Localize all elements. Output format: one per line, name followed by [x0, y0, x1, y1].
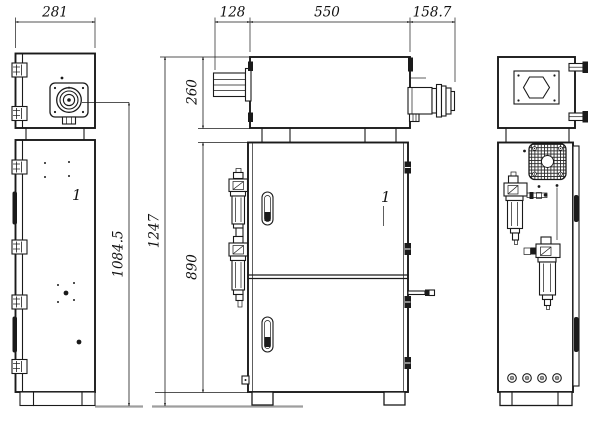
hinge-icon	[12, 360, 27, 374]
door-pull-edge	[574, 195, 579, 222]
left-cabinet	[16, 140, 96, 392]
fan-grille	[529, 144, 566, 180]
dim-box-width: 550	[314, 5, 340, 21]
dim-offset: 128	[220, 5, 246, 21]
cable-gland-connector	[408, 58, 455, 122]
hinge-icon	[405, 243, 412, 255]
side-rod	[408, 290, 435, 297]
lower-door-handle	[262, 317, 273, 352]
three-view-drawing: 1 281 1084.5 128 550 158.7 1247 260 890	[0, 0, 605, 424]
hinge-icon	[405, 357, 412, 369]
foot	[252, 392, 273, 405]
pedestal	[262, 128, 396, 142]
front-view: 1	[214, 57, 455, 405]
left-plinth	[20, 392, 95, 406]
round-connector	[50, 77, 88, 124]
hinge-icon	[12, 107, 27, 121]
door-pull-edge	[574, 317, 579, 352]
connector-icon	[538, 374, 547, 383]
hinge-icon	[569, 62, 588, 74]
right-plinth	[500, 392, 572, 406]
connector-icon	[553, 374, 562, 383]
connector-icon	[508, 374, 517, 383]
hex-access-plate	[514, 71, 559, 104]
dim-cabinet-height: 890	[185, 254, 201, 280]
hinge-icon	[569, 111, 588, 123]
hinge-icon	[12, 63, 27, 77]
technical-drawing: 1 281 1084.5 128 550 158.7 1247 260 890	[0, 0, 605, 424]
door-latch	[242, 376, 249, 384]
frl-unit-stack	[229, 169, 248, 308]
connector-icon	[523, 374, 532, 383]
hinge-icon	[405, 162, 412, 174]
front-cabinet	[248, 143, 408, 393]
hinge-icon	[405, 296, 412, 308]
hinge-icon	[12, 160, 27, 174]
dim-box-height: 260	[185, 79, 201, 106]
hinge-icon	[12, 240, 27, 254]
upper-door-handle	[262, 192, 273, 225]
dim-connector-length: 158.7	[413, 5, 452, 21]
door-pull-edge	[13, 192, 18, 225]
dim-overall-height: 1247	[147, 213, 163, 248]
dim-connector-axis-height: 1084.5	[111, 230, 127, 277]
dim-width: 281	[41, 5, 68, 21]
hinge-icon	[12, 295, 27, 309]
foot	[384, 392, 405, 405]
item-callout: 1	[72, 186, 82, 204]
front-top-box	[250, 57, 410, 128]
door-pull-edge	[13, 317, 18, 353]
item-callout: 1	[381, 188, 391, 206]
left-view: 1	[12, 54, 95, 406]
right-view	[498, 57, 588, 406]
left-bracket	[214, 62, 254, 123]
